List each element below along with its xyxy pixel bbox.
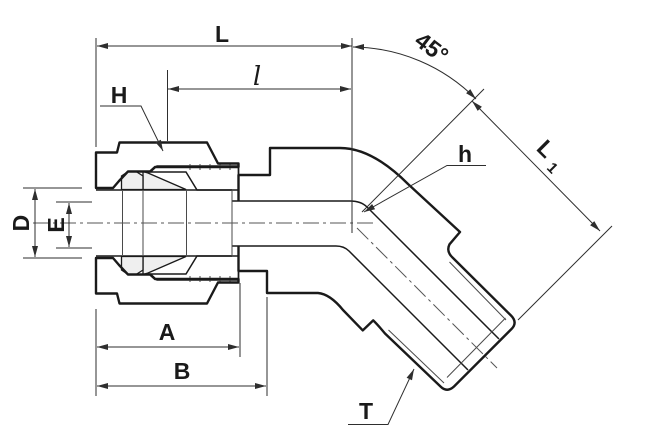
label-H: H (111, 82, 128, 108)
label-E: E (43, 217, 69, 232)
label-h: h (458, 141, 472, 167)
svg-text:D: D (8, 215, 34, 232)
label-B: B (174, 358, 191, 384)
label-l: l (253, 62, 261, 92)
svg-text:E: E (43, 217, 69, 232)
label-T: T (359, 398, 373, 424)
label-A: A (159, 319, 176, 345)
technical-drawing-45deg-elbow-fitting: L l 45° H h L 1 D E A B T (0, 0, 656, 438)
label-D: D (8, 215, 34, 232)
drawing-canvas: L l 45° H h L 1 D E A B T (0, 0, 656, 438)
label-L: L (215, 21, 229, 47)
